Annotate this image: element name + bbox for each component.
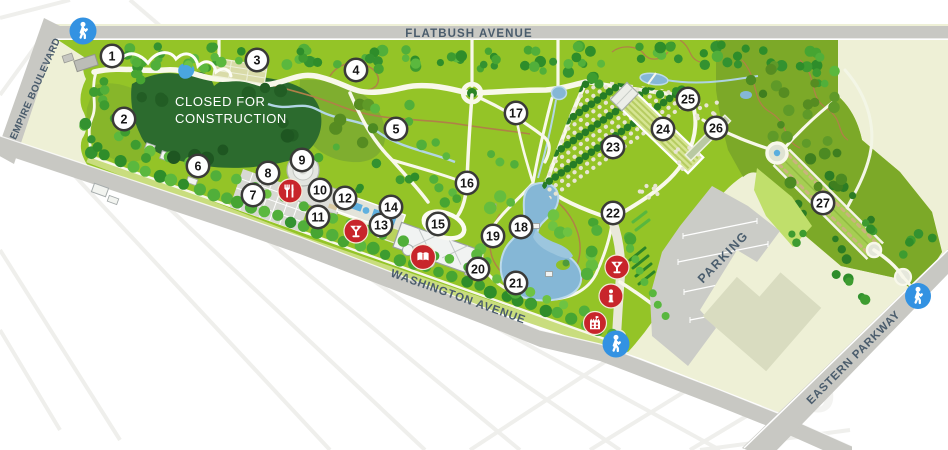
svg-text:FLATBUSH AVENUE: FLATBUSH AVENUE <box>405 28 532 40</box>
svg-text:21: 21 <box>509 277 523 291</box>
svg-text:26: 26 <box>709 122 723 136</box>
svg-text:4: 4 <box>353 64 360 78</box>
svg-text:16: 16 <box>460 177 474 191</box>
svg-text:5: 5 <box>393 123 400 137</box>
svg-text:13: 13 <box>374 219 388 233</box>
svg-text:18: 18 <box>514 221 528 235</box>
svg-text:CLOSED FOR: CLOSED FOR <box>175 94 266 109</box>
svg-text:7: 7 <box>250 189 257 203</box>
svg-text:15: 15 <box>431 218 445 232</box>
svg-text:9: 9 <box>299 154 306 168</box>
svg-text:24: 24 <box>656 123 670 137</box>
svg-text:25: 25 <box>681 93 695 107</box>
svg-text:23: 23 <box>606 141 620 155</box>
svg-text:17: 17 <box>509 107 523 121</box>
svg-text:1: 1 <box>109 50 116 64</box>
svg-text:20: 20 <box>471 263 485 277</box>
svg-text:22: 22 <box>606 207 620 221</box>
svg-text:11: 11 <box>311 211 324 225</box>
svg-text:8: 8 <box>265 167 272 181</box>
svg-text:2: 2 <box>121 113 128 127</box>
svg-text:3: 3 <box>254 54 261 68</box>
svg-text:12: 12 <box>338 192 352 206</box>
svg-text:6: 6 <box>195 160 202 174</box>
svg-text:14: 14 <box>384 201 398 215</box>
svg-text:19: 19 <box>486 230 500 244</box>
svg-text:27: 27 <box>816 197 830 211</box>
svg-text:CONSTRUCTION: CONSTRUCTION <box>175 111 287 126</box>
svg-text:10: 10 <box>313 184 327 198</box>
